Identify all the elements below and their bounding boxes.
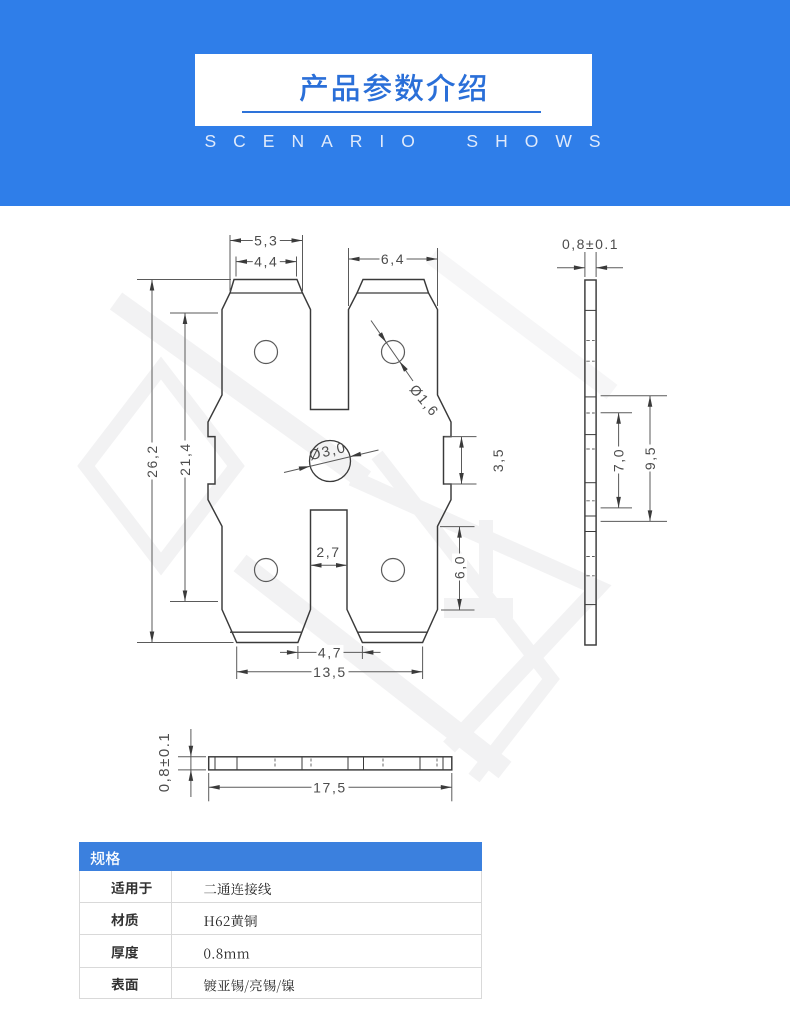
svg-text:0,8±0.1: 0,8±0.1 [562,236,619,252]
svg-text:5,3: 5,3 [254,233,278,249]
svg-text:0,8±0.1: 0,8±0.1 [156,732,173,792]
svg-text:13,5: 13,5 [313,664,347,680]
svg-text:2,7: 2,7 [316,544,340,560]
svg-text:26,2: 26,2 [144,444,160,478]
svg-text:17,5: 17,5 [313,779,347,795]
svg-text:21,4: 21,4 [177,442,193,476]
svg-text:3,5: 3,5 [490,448,506,472]
svg-text:4,7: 4,7 [318,644,342,660]
svg-text:9,5: 9,5 [642,446,658,470]
svg-text:4,4: 4,4 [254,254,278,270]
svg-text:6,0: 6,0 [452,555,468,579]
svg-text:7,0: 7,0 [611,448,627,472]
svg-text:6,4: 6,4 [381,251,405,267]
